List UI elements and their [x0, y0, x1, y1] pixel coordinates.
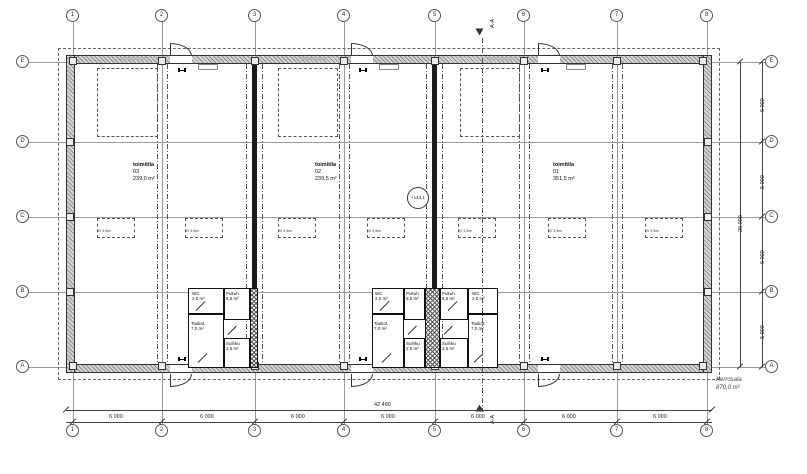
dim-bay: 6 000 [381, 414, 395, 420]
grid-bubble-row: C [765, 210, 778, 223]
column [699, 362, 707, 370]
floor-plan-sheet: IV 3,5m² IV 3,5m² IV 3,5m² IV 3,5m² IV 3… [0, 0, 807, 474]
grid-bubble-row: A [765, 360, 778, 373]
grid-bubble-col: 7 [610, 9, 623, 22]
reservation-box: IV 3,5m² [367, 218, 405, 238]
dim-bay: 6 000 [109, 414, 123, 420]
door-opening [170, 56, 192, 63]
dim-bay: 6 000 [291, 414, 305, 420]
reservation-box: IV 3,5m² [185, 218, 223, 238]
grid-bubble-row: A [16, 360, 29, 373]
grid-bubble-col: 5 [428, 424, 441, 437]
reservation-label: IV 3,5m² [186, 229, 199, 233]
unit-area: 239,5 m² [315, 176, 337, 183]
wall-annotation-smudge [120, 57, 146, 60]
wall-annotation-smudge [488, 57, 514, 60]
room-label: WC2,0 m² [192, 291, 205, 301]
grid-bubble-col: 8 [700, 424, 713, 437]
unit-label-03: toimitila 03 239,0 m² [133, 162, 155, 183]
wall-annotation-smudge [301, 57, 327, 60]
dim-tick [709, 406, 715, 412]
grid-bubble-row: B [765, 285, 778, 298]
column [158, 362, 166, 370]
dim-bay: 6 000 [471, 414, 485, 420]
column [704, 138, 712, 146]
reservation-box: IV 3,5m² [458, 218, 496, 238]
dim-bay: 6 000 [653, 414, 667, 420]
section-arrow-icon [476, 29, 484, 36]
dimension-line-overall [66, 410, 712, 411]
door-opening [351, 365, 373, 372]
door-threshold-icon [178, 68, 186, 72]
grid-bubble-col: 1 [66, 424, 79, 437]
dim-bay: 6 000 [562, 414, 576, 420]
column [340, 57, 348, 65]
door-swing-arc [170, 374, 192, 387]
grid-bubble-col: 4 [337, 424, 350, 437]
column [158, 57, 166, 65]
door-leaf [351, 374, 352, 387]
reservation-area [97, 68, 158, 137]
floor-area-note: Kerrosala 870,0 m² [716, 376, 742, 392]
column [69, 57, 77, 65]
room-label: Suihku2,5 m² [226, 341, 240, 351]
door-opening [538, 365, 560, 372]
door-threshold-icon [541, 68, 549, 72]
door-swing-arc [538, 43, 560, 56]
unit-name: toimitila [133, 162, 154, 168]
door-opening [351, 56, 373, 63]
reservation-label: IV 3,5m² [549, 229, 562, 233]
dim-row: 5 000 [760, 325, 766, 339]
column [704, 213, 712, 221]
unit-area: 239,0 m² [133, 176, 155, 183]
door-swing-arc [351, 374, 373, 387]
column [251, 57, 259, 65]
column [340, 362, 348, 370]
grid-bubble-col: 4 [337, 9, 350, 22]
grid-bubble-col: 2 [155, 9, 168, 22]
unit-number: 02 [315, 169, 337, 176]
column [699, 57, 707, 65]
grid-bubble-row: D [16, 135, 29, 148]
grid-bubble-col: 8 [700, 9, 713, 22]
column [69, 362, 77, 370]
door-opening [538, 56, 560, 63]
room-label: Taukot.7,0 m² [374, 321, 389, 331]
door-threshold-icon [541, 357, 549, 361]
section-line [482, 38, 483, 412]
column [431, 57, 439, 65]
unit-name: toimitila [553, 162, 574, 168]
reservation-box: IV 3,5m² [278, 218, 316, 238]
door-leaf [538, 43, 539, 56]
dim-row: 5 000 [760, 250, 766, 264]
reservation-area [460, 68, 520, 137]
column [66, 213, 74, 221]
reservation-area [278, 68, 338, 137]
grid-bubble-row: C [16, 210, 29, 223]
reservation-label: IV 3,5m² [646, 229, 659, 233]
room-label: Suihku2,5 m² [442, 341, 456, 351]
door-leaf [351, 43, 352, 56]
reservation-label: IV 3,5m² [459, 229, 472, 233]
door-swing-arc [351, 43, 373, 56]
reservation-box: IV 3,5m² [548, 218, 586, 238]
column [613, 57, 621, 65]
unit-area: 351,5 m² [553, 176, 575, 183]
reservation-box: IV 3,5m² [97, 218, 135, 238]
door-threshold-icon [359, 357, 367, 361]
unit-number: 01 [553, 169, 575, 176]
door-swing-arc [170, 43, 192, 56]
grid-bubble-row: E [16, 55, 29, 68]
door-threshold-icon [178, 357, 186, 361]
room-label: Taukot.7,0 m² [471, 321, 486, 331]
reservation-box: IV 3,5m² [645, 218, 683, 238]
shaft [425, 288, 440, 368]
column [66, 138, 74, 146]
room-label: Suihku2,5 m² [406, 341, 420, 351]
shaft [250, 288, 258, 368]
dim-row: 5 000 [760, 175, 766, 189]
door-landing [566, 64, 586, 70]
reservation-label: IV 3,5m² [368, 229, 381, 233]
door-leaf [170, 43, 171, 56]
level-value: +143,1 [411, 195, 425, 200]
column [520, 362, 528, 370]
room-label: Taukot.7,0 m² [191, 321, 206, 331]
room-label: Pukuh.5,5 m² [442, 291, 456, 301]
unit-number: 03 [133, 169, 155, 176]
door-landing [198, 64, 218, 70]
reservation-label: IV 3,5m² [98, 229, 111, 233]
unit-label-02: toimitila 02 239,5 m² [315, 162, 337, 183]
grid-bubble-row: E [765, 55, 778, 68]
door-swing-arc [538, 374, 560, 387]
room-label: Pukuh.5,5 m² [226, 291, 240, 301]
dim-bay: 6 000 [200, 414, 214, 420]
grid-bubble-col: 5 [428, 9, 441, 22]
column [704, 288, 712, 296]
column [66, 288, 74, 296]
grid-bubble-row: D [765, 135, 778, 148]
grid-bubble-col: 1 [66, 9, 79, 22]
grid-bubble-col: 6 [517, 424, 530, 437]
grid-bubble-col: 6 [517, 9, 530, 22]
door-threshold-icon [359, 68, 367, 72]
column [613, 362, 621, 370]
unit-label-01: toimitila 01 351,5 m² [553, 162, 575, 183]
room-label: Pukuh.5,5 m² [406, 291, 420, 301]
grid-bubble-col: 2 [155, 424, 168, 437]
dim-overall-width: 42 480 [374, 402, 391, 408]
grid-bubble-row: B [16, 285, 29, 298]
door-leaf [538, 374, 539, 387]
dim-row: 5 000 [760, 98, 766, 112]
grid-bubble-col: 3 [248, 9, 261, 22]
room-label: WC2,0 m² [375, 291, 388, 301]
dim-overall-height: 20 000 [738, 215, 744, 232]
unit-name: toimitila [315, 162, 336, 168]
section-label: A-A [490, 19, 496, 28]
reservation-label: IV 3,5m² [279, 229, 292, 233]
door-leaf [170, 374, 171, 387]
column [520, 57, 528, 65]
grid-bubble-col: 3 [248, 424, 261, 437]
grid-bubble-col: 7 [610, 424, 623, 437]
level-marker: +143,1 [407, 187, 429, 209]
door-landing [379, 64, 399, 70]
